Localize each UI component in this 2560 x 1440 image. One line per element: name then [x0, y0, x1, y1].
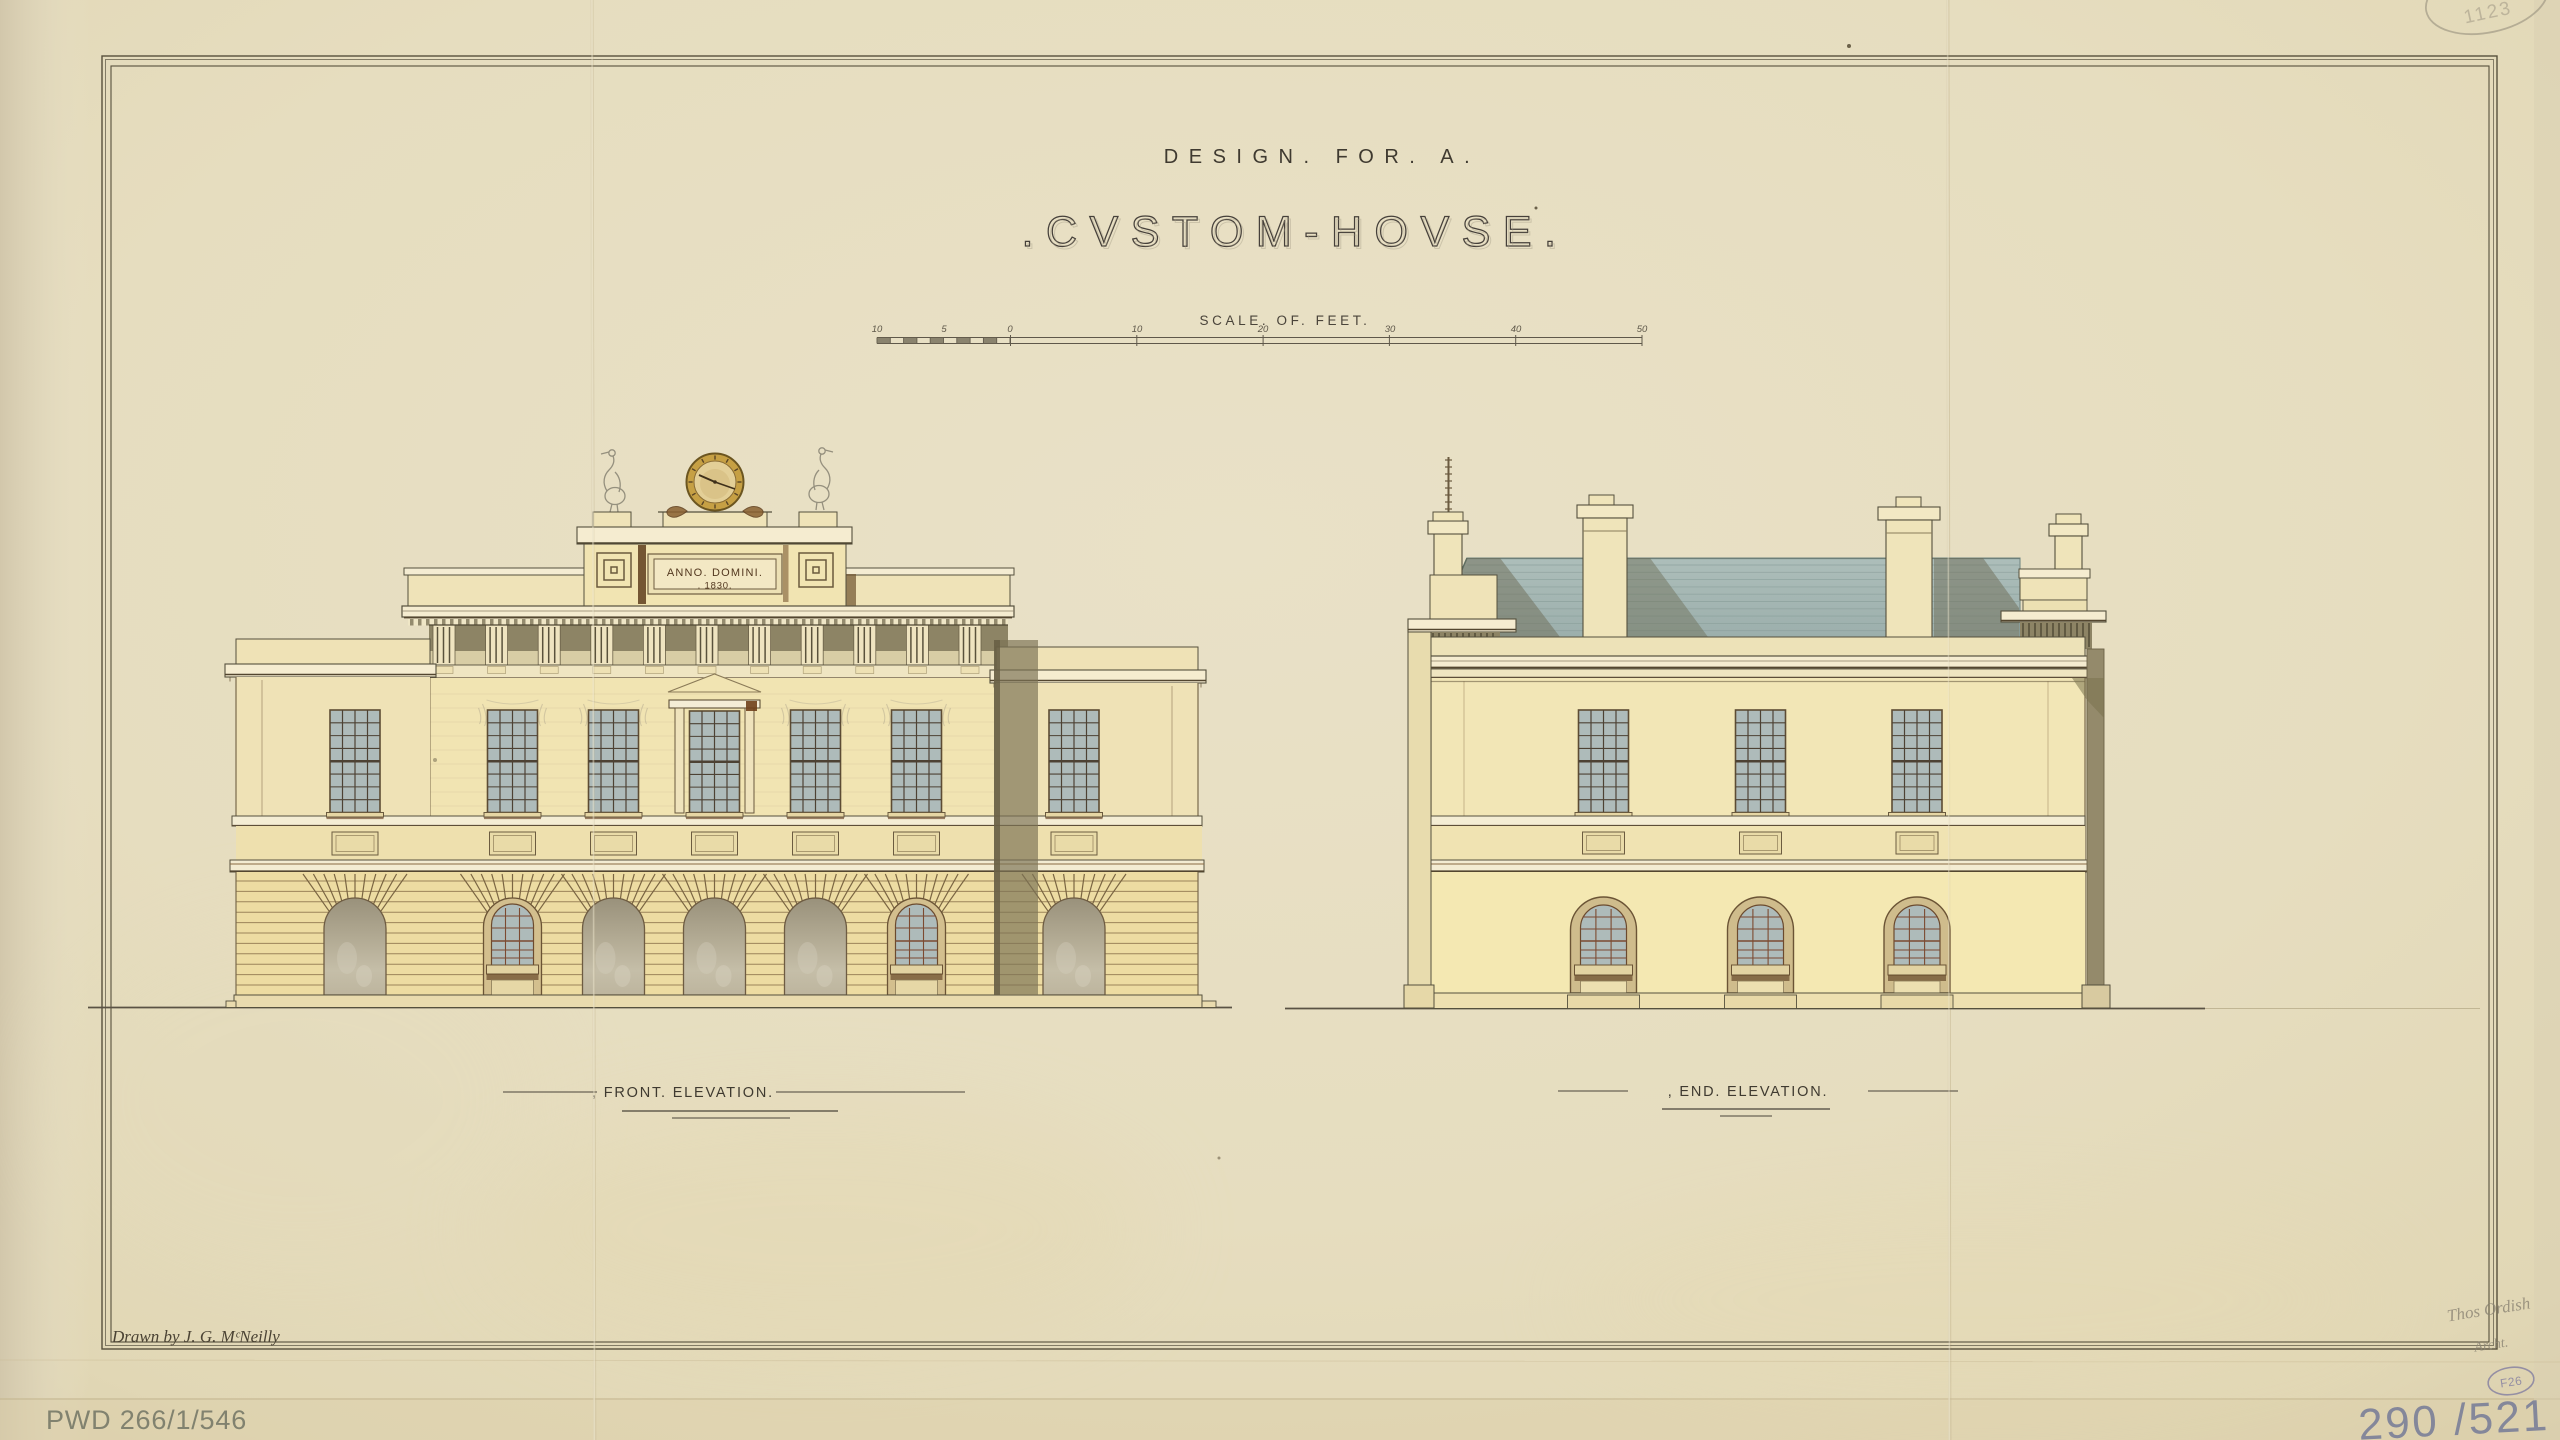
svg-text:, FRONT. ELEVATION.: , FRONT. ELEVATION.: [592, 1085, 774, 1101]
svg-text:5: 5: [941, 324, 947, 335]
svg-text:, END. ELEVATION.: , END. ELEVATION.: [1668, 1084, 1829, 1100]
svg-text:50: 50: [1637, 324, 1648, 335]
svg-text:PWD 266/1/546: PWD 266/1/546: [46, 1405, 247, 1435]
svg-text:Drawn by J. G. MᶜNeilly: Drawn by J. G. MᶜNeilly: [111, 1327, 280, 1346]
svg-text:ANNO. DOMINI.: ANNO. DOMINI.: [667, 567, 763, 579]
svg-text:.CVSTOM-HOVSE.: .CVSTOM-HOVSE.: [1024, 210, 1571, 258]
svg-text:SCALE. OF. FEET.: SCALE. OF. FEET.: [1200, 313, 1371, 328]
svg-text:20: 20: [1257, 324, 1269, 335]
svg-text:DESIGN. FOR. A.: DESIGN. FOR. A.: [1164, 146, 1480, 168]
svg-text:40: 40: [1511, 324, 1522, 335]
svg-text:30: 30: [1385, 324, 1396, 335]
svg-text:10: 10: [872, 324, 883, 335]
svg-text:10: 10: [1132, 324, 1143, 335]
svg-text:. 1830.: . 1830.: [698, 581, 733, 592]
svg-text:0: 0: [1007, 324, 1013, 335]
